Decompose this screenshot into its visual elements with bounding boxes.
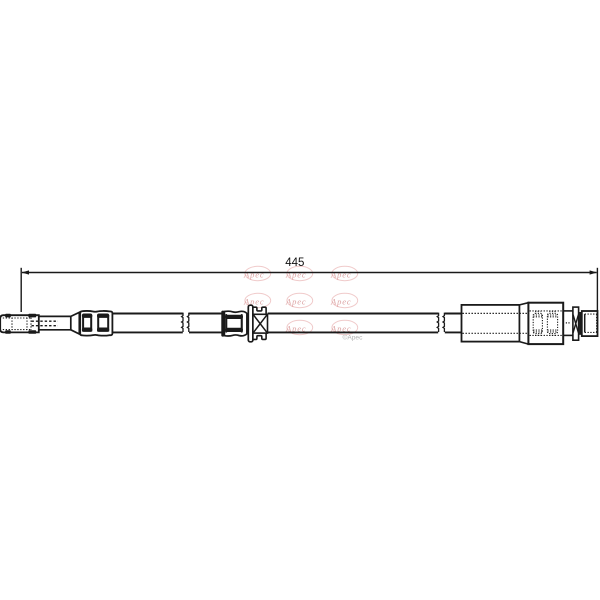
svg-text:445: 445 <box>285 257 304 269</box>
svg-text:©Apec: ©Apec <box>343 334 364 342</box>
